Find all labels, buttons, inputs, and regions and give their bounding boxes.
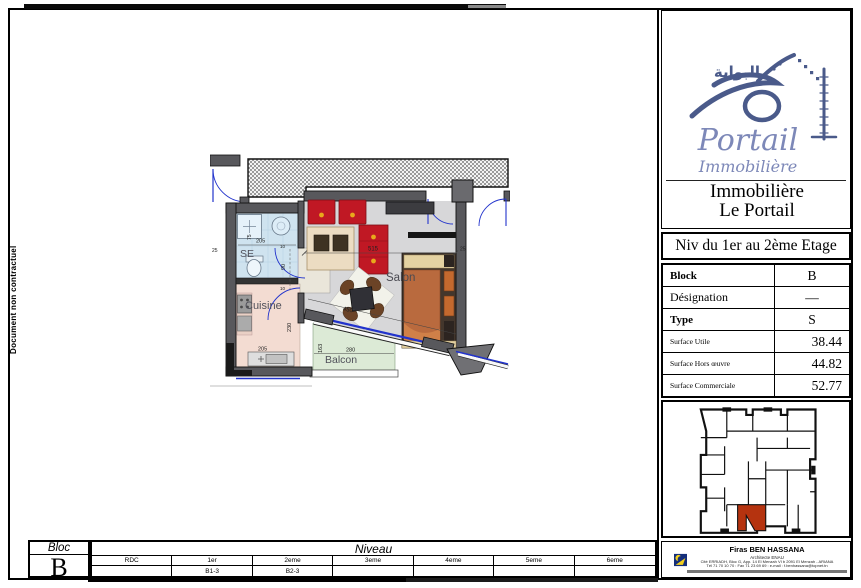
spec-value-designation: — — [775, 287, 849, 308]
architect-footer-strip — [687, 570, 847, 573]
dim-cuisine-width: 205 — [258, 347, 267, 353]
room-label-cuisine: Cuisine — [245, 300, 282, 312]
dim-salon-width: 515 — [368, 247, 379, 253]
spec-label-designation: Désignation — [663, 287, 775, 308]
spec-value-surface-utile: 38.44 — [775, 331, 849, 352]
table-row: Block B — [663, 265, 849, 287]
page-top-rule — [24, 4, 506, 9]
table-row: Surface Commerciale 52.77 — [663, 375, 849, 396]
non-contractual-note: Document non contractuel — [9, 240, 26, 360]
sink-basin — [266, 355, 287, 364]
spec-label-surface-commerciale: Surface Commerciale — [663, 375, 775, 396]
niveau-value-3eme — [333, 566, 413, 576]
niveau-col-3eme: 3eme — [333, 556, 413, 566]
bottom-rule-bloc — [28, 577, 88, 579]
table-row: Type S — [663, 309, 849, 331]
tv-console — [386, 202, 434, 214]
table-row: Surface Hors œuvre 44.82 — [663, 353, 849, 375]
floor-plan: 515 25 25 450 205 75 90 10 10 230 205 16… — [210, 153, 510, 411]
structural-column — [452, 180, 473, 202]
niveau-col-1er: 1er — [172, 556, 252, 566]
niveau-value-2eme: B2-3 — [253, 566, 333, 576]
dim-hall-width: 90 — [281, 264, 287, 270]
architect-info: Firas BEN HASSANA Architecte ENAU Cité E… — [687, 546, 850, 573]
panel-divider-line — [657, 8, 659, 580]
niveau-value-rdc — [92, 566, 172, 576]
niveau-col-rdc: RDC — [92, 556, 172, 566]
corridor-wall — [210, 155, 240, 166]
niveau-value-6eme — [575, 566, 655, 576]
niveau-value-5eme — [494, 566, 574, 576]
wc-bowl — [247, 260, 261, 277]
architect-name: Firas BEN HASSANA — [687, 546, 847, 555]
spec-label-surface-hors-oeuvre: Surface Hors œuvre — [663, 353, 775, 374]
spec-label-block: Block — [663, 265, 775, 286]
niveau-col-5eme: 5eme — [494, 556, 574, 566]
armchair — [339, 200, 366, 224]
drawing-sheet: Document non contractuel — [0, 0, 861, 588]
dim-entry-width: 205 — [256, 239, 265, 245]
dim-wall-a: 10 — [280, 244, 286, 249]
niveau-col-2eme: 2eme — [253, 556, 333, 566]
spec-table: Block B Désignation — Type S Surface Uti… — [661, 263, 851, 398]
niveau-grid: RDC 1er 2eme 3eme 4eme 5eme 6eme B1-3 B2… — [92, 556, 655, 576]
bottom-rule-left — [88, 577, 406, 582]
spec-value-block: B — [775, 265, 849, 286]
key-plan — [663, 403, 849, 535]
spec-label-type: Type — [663, 309, 775, 330]
table-row: Surface Utile 38.44 — [663, 331, 849, 353]
niveau-table: Niveau RDC 1er 2eme 3eme 4eme 5eme 6eme … — [90, 540, 657, 578]
spec-value-type: S — [775, 309, 849, 330]
dim-balcon-width: 280 — [346, 348, 355, 354]
brand-arabic-calligraphy: البوابة — [662, 63, 812, 81]
dim-balcon-depth: 163 — [318, 344, 324, 353]
washbasin — [272, 217, 290, 235]
dim-salon-right: 25 — [460, 247, 466, 253]
niveau-title: Niveau — [92, 542, 655, 556]
bottom-rule-right — [406, 578, 658, 582]
brand-script-name: Portail — [662, 123, 834, 158]
architect-stamp: Firas BEN HASSANA Architecte ENAU Cité E… — [661, 541, 851, 578]
dim-entry-side: 75 — [247, 234, 253, 240]
company-name-line2: Le Portail — [662, 201, 851, 220]
company-name-line1: Immobilière — [662, 182, 851, 201]
level-title-box: Niv du 1er au 2ème Etage — [661, 232, 851, 260]
dim-cuisine-depth: 230 — [287, 323, 293, 332]
bloc-box: Bloc B — [28, 540, 90, 578]
niveau-value-1er: B1-3 — [172, 566, 252, 576]
niveau-col-4eme: 4eme — [414, 556, 494, 566]
level-title: Niv du 1er au 2ème Etage — [675, 237, 836, 255]
spec-value-surface-commerciale: 52.77 — [775, 375, 849, 396]
spec-value-surface-hors-oeuvre: 44.82 — [775, 353, 849, 374]
spec-label-surface-utile: Surface Utile — [663, 331, 775, 352]
table-row: Désignation — — [663, 287, 849, 309]
room-label-balcon: Balcon — [325, 354, 357, 366]
room-label-salon: Salon — [386, 272, 415, 284]
page-top-rule-fade — [468, 5, 506, 8]
room-label-se: SE — [240, 248, 254, 260]
burner — [240, 299, 243, 302]
brand-logo-box: البوابة Portail Immobilière Immobilière … — [661, 10, 851, 229]
burner — [240, 306, 243, 309]
company-name: Immobilière Le Portail — [662, 182, 851, 221]
dim-salon-left: 25 — [212, 248, 218, 254]
bed — [402, 253, 456, 348]
dim-wall-b: 10 — [280, 286, 286, 291]
neighbour-door-arc — [479, 199, 506, 226]
niveau-value-4eme — [414, 566, 494, 576]
brand-script-subtitle: Immobilière — [662, 157, 834, 176]
architect-logo — [674, 546, 687, 574]
cream-sofa — [307, 227, 354, 270]
architect-contact: Tél 71 70 10 70 : Fax 71 23 69 69 : e-ma… — [687, 564, 847, 569]
niveau-col-6eme: 6eme — [575, 556, 655, 566]
balcon-parapet — [310, 370, 398, 377]
appliance — [238, 316, 252, 331]
key-plan-box — [661, 400, 851, 538]
armchair — [308, 200, 335, 224]
